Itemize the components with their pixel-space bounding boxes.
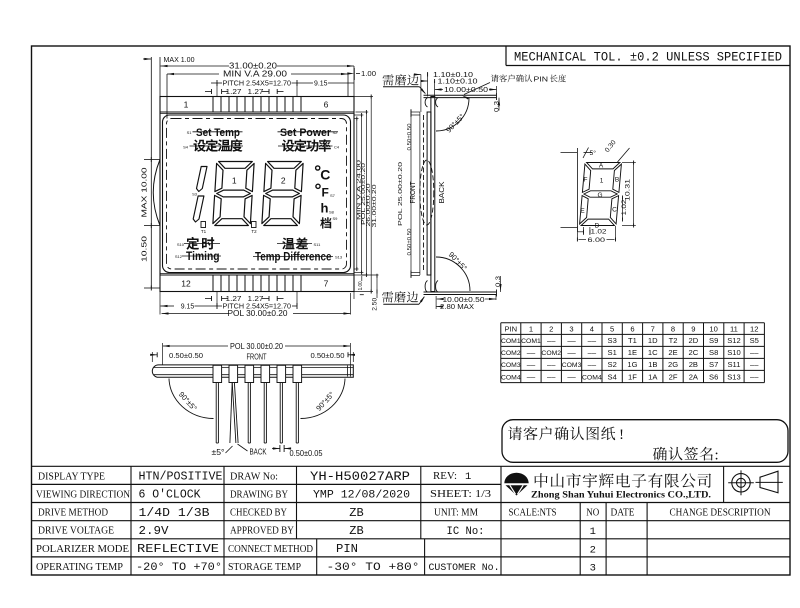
svg-text:6: 6 (324, 100, 329, 110)
svg-text:F: F (584, 177, 588, 184)
svg-text:2: 2 (281, 176, 286, 186)
svg-text:VIEWING DIRECTION: VIEWING DIRECTION (36, 488, 130, 500)
svg-text:1.10±0.10: 1.10±0.10 (438, 79, 478, 86)
svg-text:1: 1 (465, 471, 471, 483)
svg-text:0.50±0.50: 0.50±0.50 (407, 229, 413, 256)
svg-text:4: 4 (590, 324, 594, 333)
svg-text:––: –– (547, 360, 556, 369)
svg-text:S2: S2 (608, 360, 617, 369)
svg-text:DRAWING BY: DRAWING BY (230, 488, 288, 500)
svg-text:0.50±0.50: 0.50±0.50 (169, 351, 203, 360)
svg-text:F: F (322, 186, 329, 200)
svg-text:––: –– (567, 336, 576, 345)
svg-text:S3: S3 (192, 192, 198, 197)
svg-text:C: C (320, 167, 330, 183)
svg-text:S5: S5 (750, 336, 759, 345)
svg-text:9.15: 9.15 (314, 79, 328, 88)
svg-text:T1: T1 (201, 229, 207, 234)
svg-text:0.3: 0.3 (494, 101, 501, 112)
svg-text:S2: S2 (333, 130, 339, 135)
svg-text:SCALE:NTS: SCALE:NTS (509, 507, 557, 518)
svg-text:31.00±0.20: 31.00±0.20 (372, 185, 378, 228)
svg-text:8: 8 (671, 324, 675, 333)
svg-text:MIN V.A 29.00: MIN V.A 29.00 (223, 70, 288, 79)
svg-text:PIN: PIN (504, 324, 517, 333)
svg-text:2: 2 (590, 544, 596, 556)
svg-text:POL 30.00±0.20: POL 30.00±0.20 (230, 342, 283, 351)
svg-text:S13: S13 (335, 255, 343, 260)
svg-text:S8: S8 (709, 348, 718, 357)
svg-text:COM3: COM3 (501, 362, 521, 369)
svg-text:DRIVE VOLTAGE: DRIVE VOLTAGE (38, 525, 114, 537)
svg-text:2.9V: 2.9V (139, 525, 169, 538)
svg-text:0.50±0.50: 0.50±0.50 (311, 351, 345, 360)
svg-text:T2: T2 (669, 336, 678, 345)
svg-text:±5°: ±5° (212, 448, 225, 457)
svg-text:5: 5 (610, 324, 614, 333)
svg-text:1: 1 (232, 176, 237, 186)
svg-text:POL 30.00±0.20: POL 30.00±0.20 (228, 309, 289, 318)
svg-text:0.50±0.50: 0.50±0.50 (407, 124, 413, 151)
svg-text:S9: S9 (709, 336, 718, 345)
svg-text:3: 3 (569, 324, 573, 333)
svg-text:S9: S9 (333, 216, 339, 221)
svg-text:B: B (615, 177, 619, 184)
svg-text:12: 12 (750, 324, 758, 333)
svg-text:S4: S4 (608, 372, 617, 381)
svg-text:1: 1 (529, 324, 533, 333)
svg-text:2F: 2F (669, 372, 678, 381)
svg-text:2: 2 (549, 324, 553, 333)
svg-text:1B: 1B (648, 360, 657, 369)
svg-text:-20° TO +70°: -20° TO +70° (136, 562, 222, 574)
svg-text:––: –– (588, 348, 597, 357)
svg-text::: : (715, 447, 719, 463)
svg-text:S6: S6 (709, 372, 718, 381)
svg-text:9.15: 9.15 (181, 302, 195, 311)
svg-text:POLARIZER MODE: POLARIZER MODE (36, 543, 129, 555)
svg-text:POL 25.00±0.20: POL 25.00±0.20 (398, 162, 404, 226)
svg-text:S10: S10 (727, 348, 741, 357)
svg-text:S1: S1 (187, 130, 193, 135)
svg-text:1F: 1F (628, 372, 637, 381)
svg-text:NO: NO (586, 507, 599, 518)
svg-text:FRONT: FRONT (247, 353, 267, 362)
svg-text:DATE: DATE (611, 507, 635, 518)
svg-text:7: 7 (324, 279, 329, 289)
svg-text:CUSTOMER No.: CUSTOMER No. (429, 562, 500, 574)
svg-text:S1: S1 (608, 348, 617, 357)
svg-text:2C: 2C (688, 348, 698, 357)
svg-text:COM1: COM1 (501, 338, 521, 345)
svg-text:1.02: 1.02 (591, 228, 607, 235)
svg-text:ZB: ZB (349, 506, 363, 520)
svg-text:1D: 1D (648, 336, 658, 345)
svg-text:1.00: 1.00 (361, 69, 376, 78)
svg-text:REFLECTIVE: REFLECTIVE (137, 542, 219, 556)
svg-text:––: –– (588, 360, 597, 369)
svg-text:1.27: 1.27 (248, 87, 264, 96)
svg-text:MAX 1.00: MAX 1.00 (164, 55, 195, 64)
svg-text:A: A (599, 163, 604, 170)
svg-text:OPERATING TEMP: OPERATING TEMP (36, 561, 123, 573)
svg-text:––: –– (750, 372, 759, 381)
svg-text:COM3: COM3 (562, 362, 582, 369)
svg-text:Set Power: Set Power (280, 127, 332, 139)
svg-text:––: –– (527, 372, 536, 381)
svg-text:1A: 1A (648, 372, 658, 381)
svg-text:0.50±0.05: 0.50±0.05 (290, 449, 324, 458)
svg-text:1.27: 1.27 (226, 87, 242, 96)
svg-text:1G: 1G (627, 360, 637, 369)
svg-text:––: –– (750, 348, 759, 357)
svg-text:3: 3 (590, 562, 596, 574)
svg-text:––: –– (527, 360, 536, 369)
svg-text:S12: S12 (175, 254, 183, 259)
svg-text:10.50: 10.50 (142, 236, 149, 262)
svg-text:COM1: COM1 (521, 338, 541, 345)
svg-text:7: 7 (651, 324, 655, 333)
svg-text:12: 12 (181, 279, 191, 289)
svg-text:2.80 MAX: 2.80 MAX (440, 304, 474, 311)
svg-text:APPROVED BY: APPROVED BY (230, 525, 294, 537)
svg-text:S12: S12 (727, 336, 741, 345)
svg-text:10.00±0.50: 10.00±0.50 (443, 297, 485, 304)
svg-text:!: ! (619, 427, 624, 443)
svg-text:1.00: 1.00 (358, 281, 364, 290)
svg-text:––: –– (527, 348, 536, 357)
svg-text:6.00: 6.00 (588, 237, 606, 244)
svg-text:1: 1 (590, 526, 596, 538)
svg-text:2A: 2A (689, 372, 699, 381)
svg-text:COM4: COM4 (582, 374, 602, 381)
svg-text:C: C (612, 207, 617, 214)
svg-text:BACK: BACK (250, 448, 268, 457)
svg-text:––: –– (750, 360, 759, 369)
svg-text:Set Temp: Set Temp (196, 127, 240, 139)
svg-text:C4: C4 (334, 145, 340, 150)
svg-text:CHANGE DESCRIPTION: CHANGE DESCRIPTION (670, 507, 771, 518)
svg-text:S11: S11 (314, 242, 322, 247)
svg-text:9: 9 (691, 324, 695, 333)
svg-text:DRAW No:: DRAW No: (230, 470, 278, 482)
svg-text:STORAGE TEMP: STORAGE TEMP (228, 561, 301, 573)
svg-text:6: 6 (630, 324, 634, 333)
svg-text:1: 1 (184, 100, 189, 110)
svg-text:E: E (580, 208, 585, 215)
svg-text:0.3: 0.3 (495, 276, 502, 287)
svg-text:1E: 1E (628, 348, 637, 357)
svg-text:S7: S7 (330, 193, 336, 198)
svg-text:BACK: BACK (439, 181, 446, 203)
svg-text:1: 1 (600, 178, 604, 185)
svg-text:2B: 2B (689, 360, 698, 369)
svg-text:CONNECT METHOD: CONNECT METHOD (228, 543, 313, 555)
svg-text:10.00±0.50: 10.00±0.50 (444, 87, 488, 94)
svg-text:Zhong Shan Yuhui Electronics C: Zhong Shan Yuhui Electronics CO.,LTD. (531, 491, 711, 501)
svg-text:COM2: COM2 (501, 350, 521, 357)
svg-text:UNIT: MM: UNIT: MM (434, 507, 479, 518)
svg-text:COM2: COM2 (541, 350, 561, 357)
svg-text:––: –– (547, 372, 556, 381)
svg-text:IC No:: IC No: (447, 526, 485, 538)
svg-text:––: –– (547, 336, 556, 345)
svg-text:S7: S7 (709, 360, 718, 369)
svg-text:DISPLAY TYPE: DISPLAY TYPE (38, 470, 105, 482)
svg-text:Timing: Timing (186, 251, 220, 263)
svg-text:T2: T2 (251, 229, 257, 234)
svg-text:T1: T1 (628, 336, 637, 345)
svg-text:G: G (597, 192, 602, 199)
svg-text:S8: S8 (329, 210, 335, 215)
svg-text:10: 10 (709, 324, 717, 333)
svg-text:6 O'CLOCK: 6 O'CLOCK (139, 489, 201, 502)
svg-text:S10: S10 (177, 242, 185, 247)
svg-text:2E: 2E (668, 348, 677, 357)
svg-text:CHECKED BY: CHECKED BY (230, 507, 287, 519)
svg-text:YH-H50027ARP: YH-H50027ARP (310, 469, 410, 484)
svg-text:ZB: ZB (349, 524, 363, 538)
svg-text:S4: S4 (183, 145, 189, 150)
svg-text:2.50: 2.50 (373, 297, 379, 311)
svg-text:11: 11 (730, 324, 738, 333)
svg-text:S3: S3 (608, 336, 617, 345)
svg-text:DRIVE METHOD: DRIVE METHOD (38, 507, 108, 519)
svg-text:MAX 10.00: MAX 10.00 (142, 167, 149, 217)
svg-text:S11: S11 (727, 360, 740, 369)
svg-text:SHEET: 1/3: SHEET: 1/3 (430, 489, 491, 500)
svg-text:REV:: REV: (433, 471, 457, 482)
svg-text:MECHANICAL TOL. ±0.2 UNLESS SP: MECHANICAL TOL. ±0.2 UNLESS SPECIFIED (514, 50, 782, 65)
svg-text:1/4D 1/3B: 1/4D 1/3B (139, 507, 210, 520)
svg-text:YMP 12/08/2020: YMP 12/08/2020 (313, 490, 410, 502)
svg-text:PIN: PIN (534, 75, 549, 84)
svg-text:––: –– (588, 336, 597, 345)
svg-text:1.02: 1.02 (621, 199, 628, 215)
svg-text:-30° TO +80°: -30° TO +80° (327, 562, 420, 574)
svg-text:HTN/POSITIVE: HTN/POSITIVE (139, 471, 223, 484)
svg-text:5°: 5° (590, 149, 597, 157)
svg-text:h: h (321, 201, 329, 216)
svg-text:10.31: 10.31 (625, 179, 632, 201)
svg-text:COM4: COM4 (501, 374, 521, 381)
svg-text:2G: 2G (668, 360, 678, 369)
svg-text:2D: 2D (688, 336, 698, 345)
svg-text:PIN: PIN (336, 543, 358, 556)
svg-text:1C: 1C (648, 348, 658, 357)
svg-text:S13: S13 (727, 372, 741, 381)
svg-text:––: –– (567, 348, 576, 357)
svg-text:Temp Difference: Temp Difference (255, 252, 332, 264)
svg-text:––: –– (567, 372, 576, 381)
